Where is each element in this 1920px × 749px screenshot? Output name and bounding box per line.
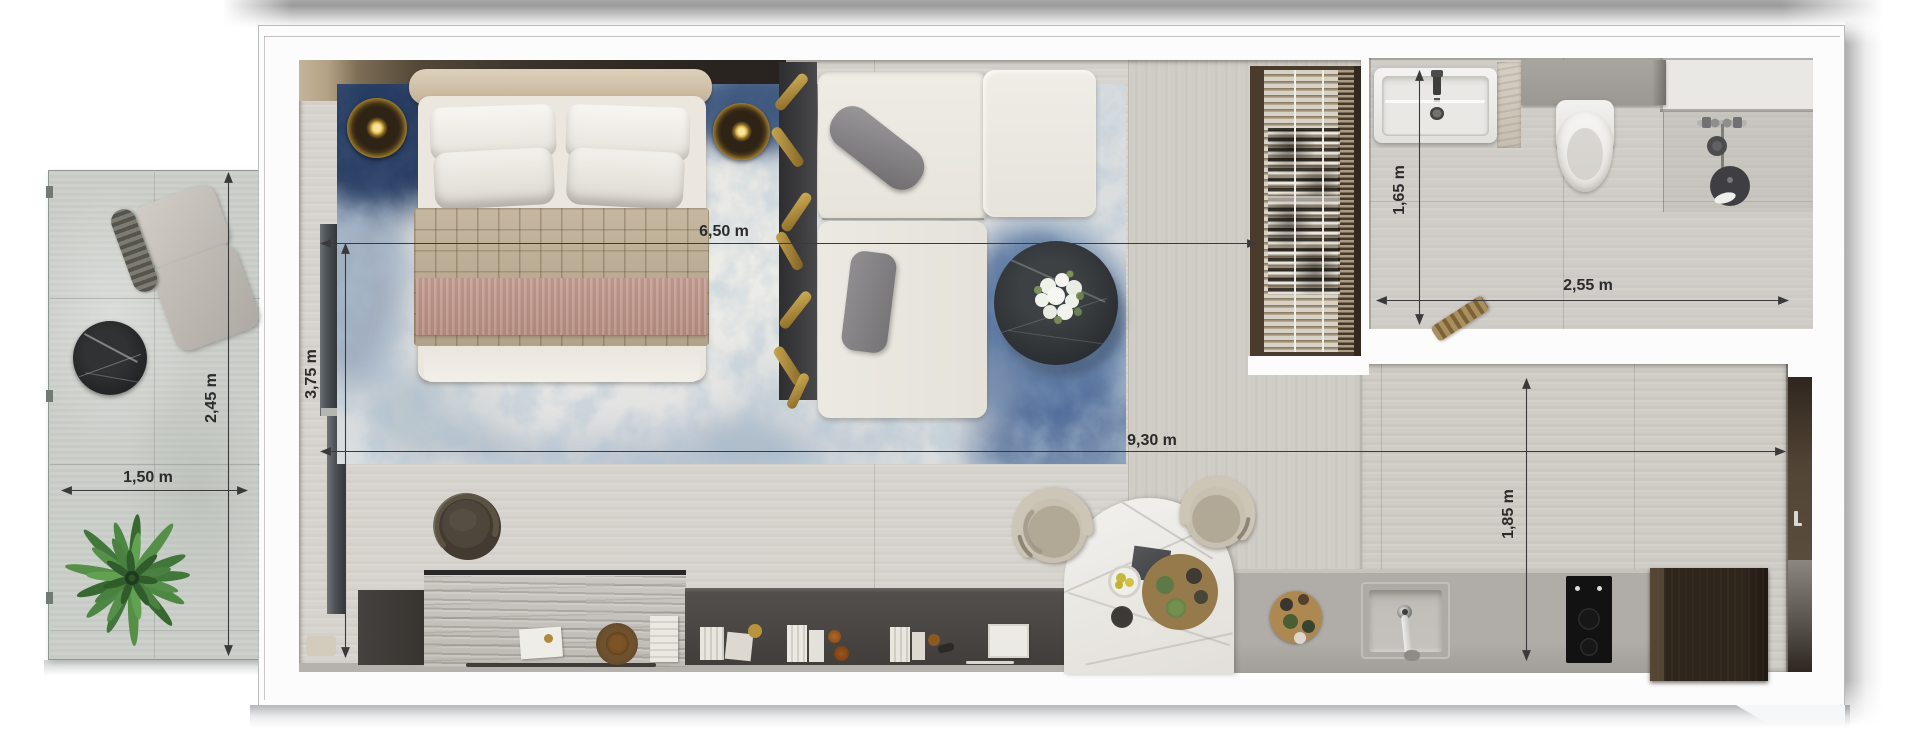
svg-text:1,65 m: 1,65 m xyxy=(1391,165,1408,215)
svg-text:9,30 m: 9,30 m xyxy=(1127,432,1177,449)
svg-text:6,50 m: 6,50 m xyxy=(699,223,749,240)
svg-text:3,75 m: 3,75 m xyxy=(303,349,320,399)
svg-text:1,85 m: 1,85 m xyxy=(1500,489,1517,539)
svg-text:2,55 m: 2,55 m xyxy=(1563,277,1613,294)
svg-text:2,45 m: 2,45 m xyxy=(203,373,220,423)
svg-text:1,50 m: 1,50 m xyxy=(123,469,173,486)
